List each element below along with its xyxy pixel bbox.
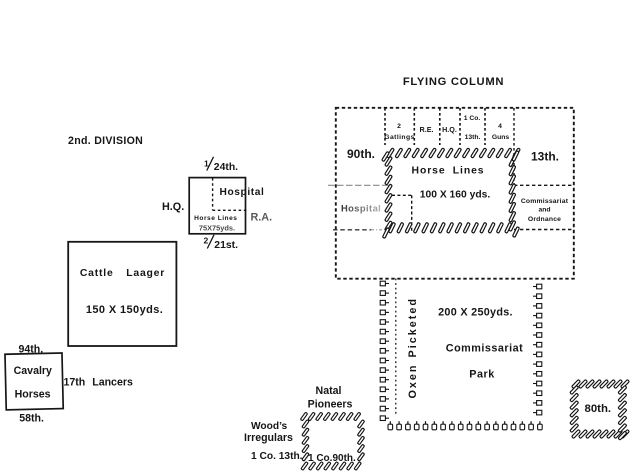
svg-text:13th.: 13th. [531,150,559,164]
svg-text:Pioneers: Pioneers [308,399,353,411]
svg-text:Ordnance: Ordnance [528,216,561,223]
svg-text:80th.: 80th. [585,403,612,415]
svg-text:13th.: 13th. [465,134,481,141]
svg-text:Hospital: Hospital [341,203,381,214]
svg-text:24th.: 24th. [214,162,238,173]
svg-text:Cattle Laager: Cattle Laager [80,268,165,279]
svg-text:1 Co.: 1 Co. [464,115,481,122]
svg-text:Gatlings: Gatlings [384,134,414,141]
svg-text:100 X 160 yds.: 100 X 160 yds. [420,190,491,201]
svg-text:2: 2 [204,236,209,246]
svg-text:Irregulars: Irregulars [244,432,293,444]
svg-text:Cavalry: Cavalry [14,365,52,377]
svg-text:1 Co. 13th.: 1 Co. 13th. [251,451,303,462]
svg-text:Wood’s: Wood’s [251,421,288,432]
svg-text:R.E.: R.E. [420,125,434,134]
svg-text:Commissariat: Commissariat [521,198,569,205]
svg-text:1 Co.90th.: 1 Co.90th. [308,453,356,464]
svg-text:4: 4 [498,123,502,130]
svg-text:150 X 150yds.: 150 X 150yds. [86,304,163,316]
svg-text:H.Q.: H.Q. [442,125,457,134]
svg-text:FLYING COLUMN: FLYING COLUMN [403,76,504,88]
svg-text:H.Q.: H.Q. [162,201,184,213]
svg-text:Commissariat: Commissariat [446,343,523,355]
svg-text:Horse Lines: Horse Lines [194,215,237,222]
svg-text:2: 2 [397,123,401,130]
svg-text:Park: Park [469,369,495,381]
svg-text:2nd. DIVISION: 2nd. DIVISION [68,135,143,147]
svg-text:75X75yds.: 75X75yds. [199,223,235,232]
svg-text:21st.: 21st. [214,240,238,251]
svg-text:and: and [538,207,550,214]
svg-text:17th Lancers: 17th Lancers [64,377,133,389]
svg-text:R.A.: R.A. [251,212,273,224]
svg-text:Horse Lines: Horse Lines [412,166,485,177]
svg-text:Natal: Natal [316,385,342,397]
svg-text:200 X 250yds.: 200 X 250yds. [438,307,513,319]
svg-text:94th.: 94th. [19,344,44,356]
svg-text:58th.: 58th. [19,413,44,425]
svg-text:Hospital: Hospital [220,187,265,198]
svg-text:90th.: 90th. [347,147,375,161]
svg-text:Oxen Picketed: Oxen Picketed [407,297,419,398]
svg-text:Guns: Guns [492,134,510,141]
svg-text:Horses: Horses [15,389,51,401]
